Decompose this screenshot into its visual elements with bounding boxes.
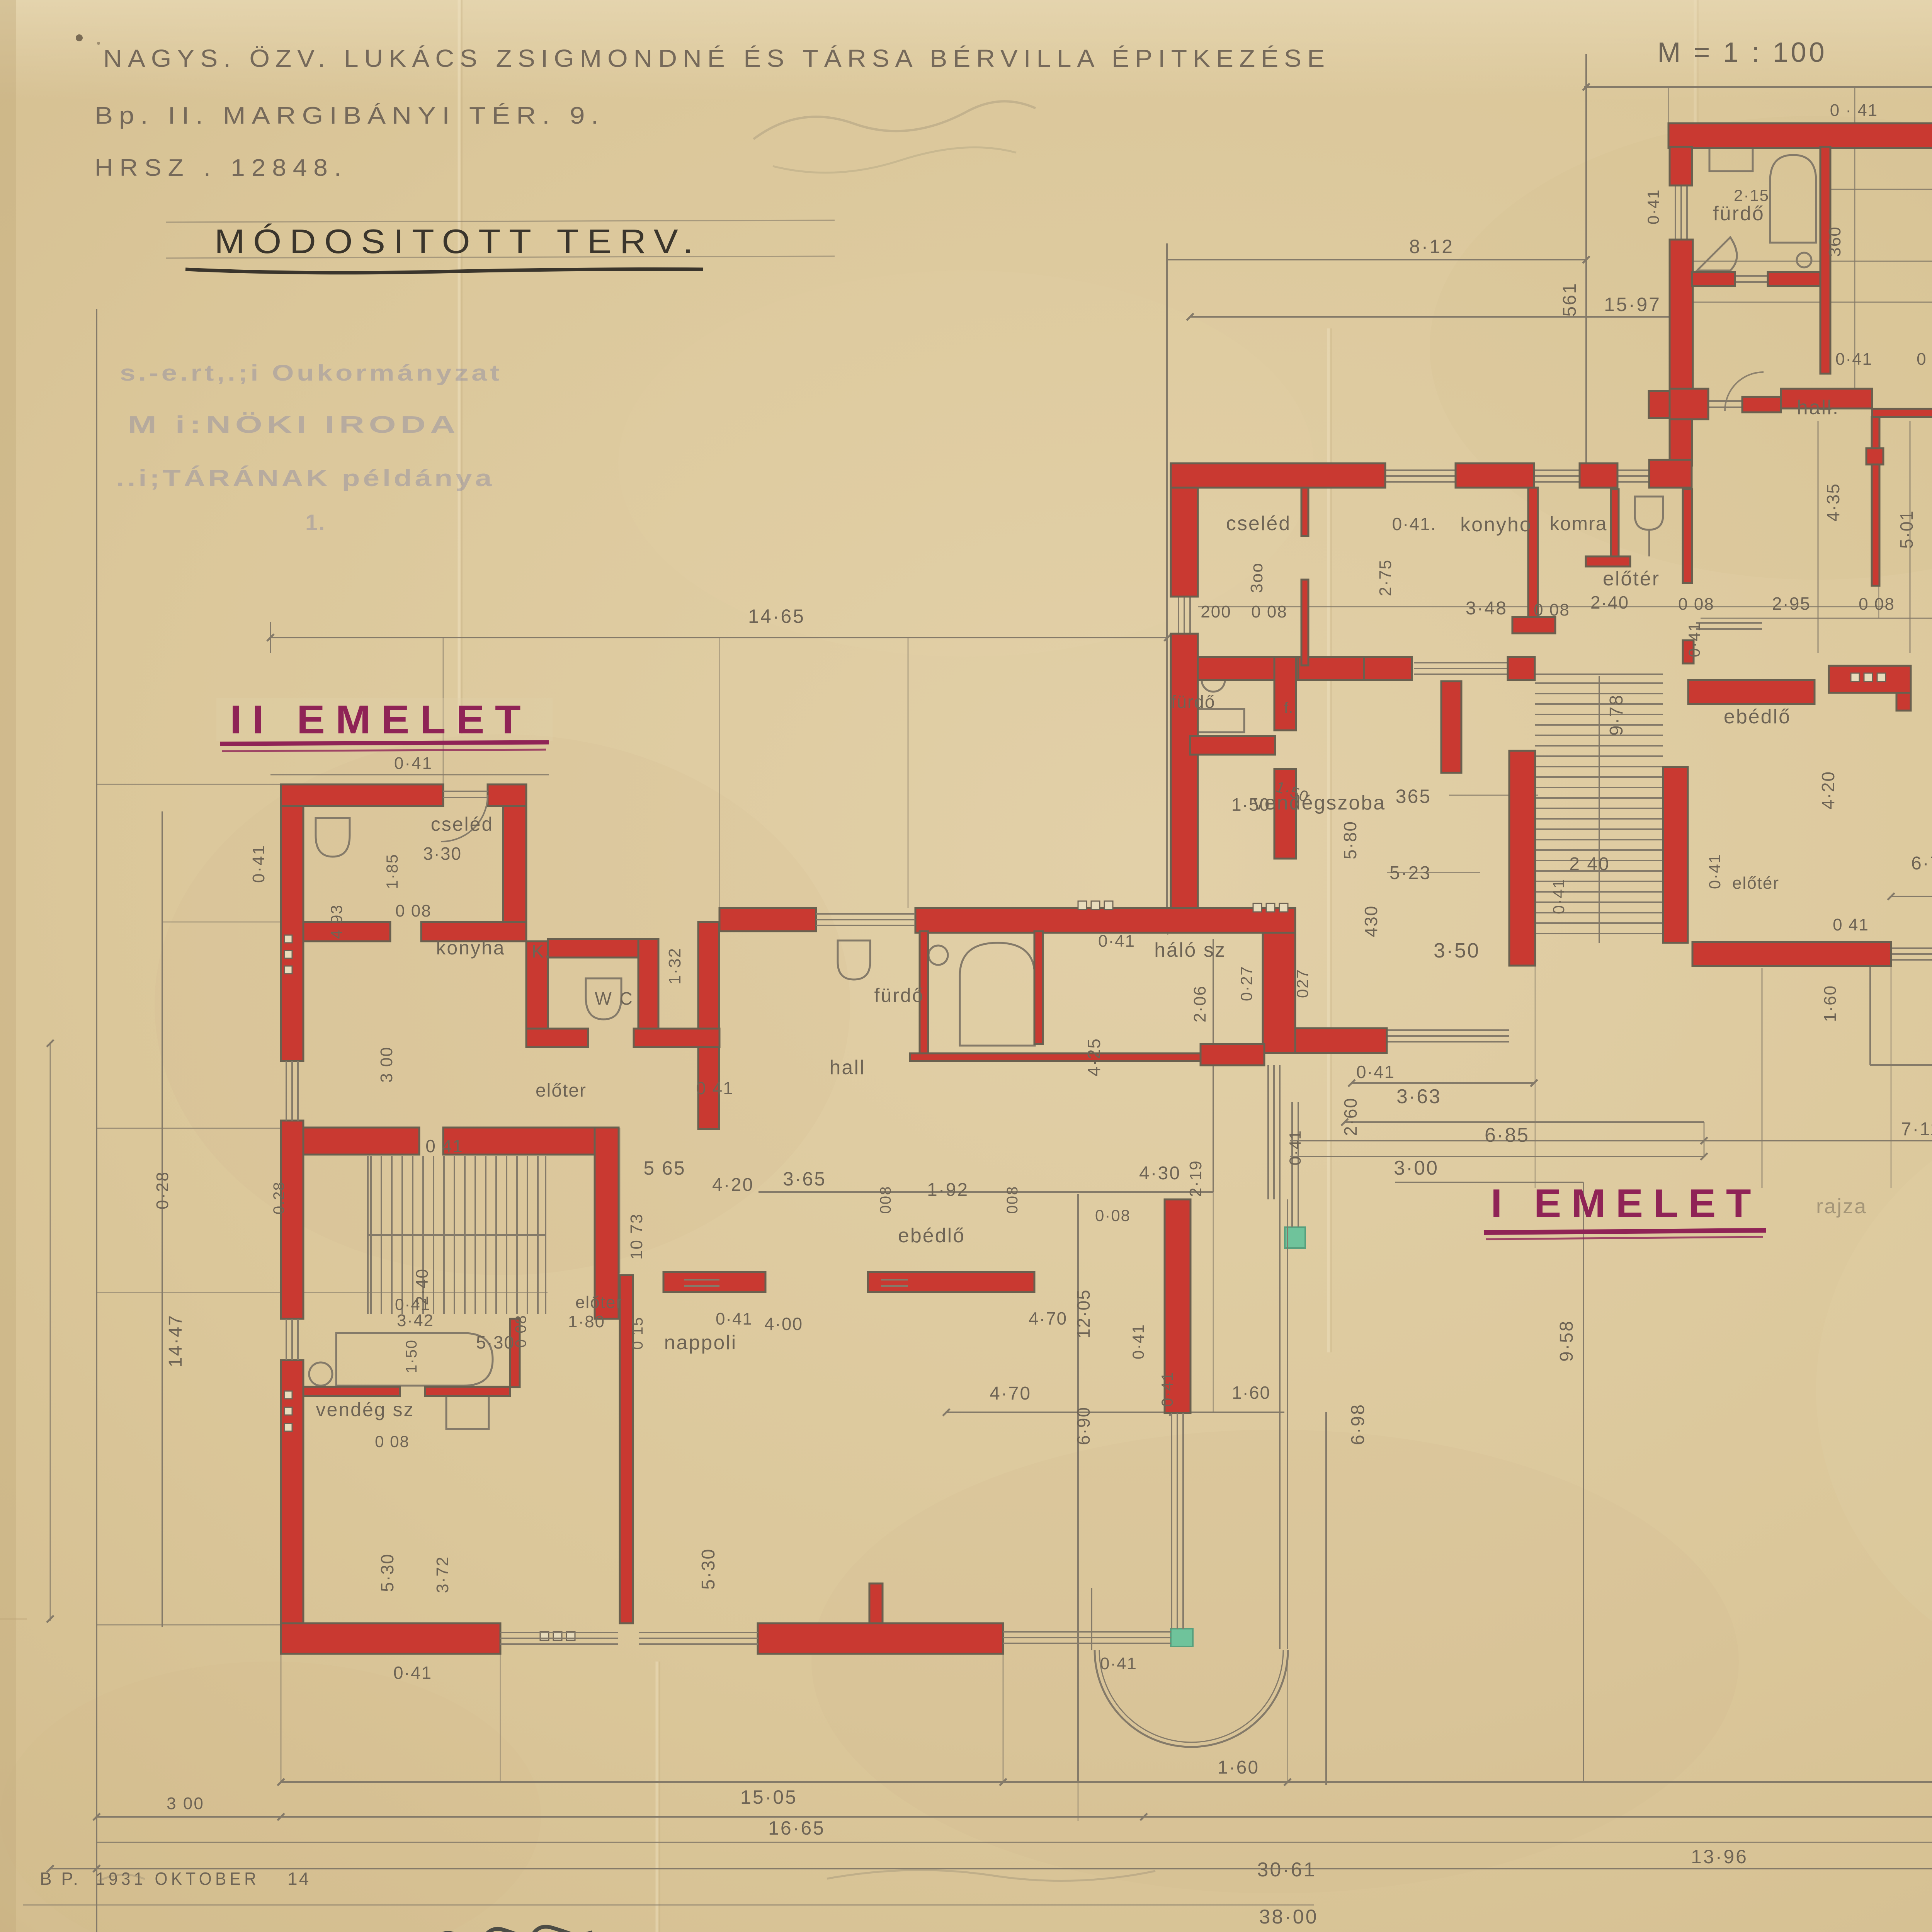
svg-text:7·11: 7·11 bbox=[1901, 1119, 1932, 1139]
svg-text:0·41: 0·41 bbox=[1549, 879, 1568, 914]
svg-text:Bp. II. MARGIBÁNYI TÉR.: Bp. II. MARGIBÁNYI TÉR. 9. bbox=[95, 102, 605, 129]
svg-text:2 40: 2 40 bbox=[1569, 854, 1610, 874]
svg-text:hall.: hall. bbox=[1797, 396, 1839, 419]
svg-text:0 · 41: 0 · 41 bbox=[1830, 101, 1878, 120]
svg-text:9·58: 9·58 bbox=[1556, 1320, 1577, 1362]
svg-text:B P.: B P. bbox=[40, 1869, 80, 1889]
svg-text:..i;TÁRÁNAK példánya: ..i;TÁRÁNAK példánya bbox=[116, 465, 495, 491]
svg-text:0·41: 0·41 bbox=[1100, 1654, 1137, 1673]
svg-text:MÓDOSITOTT TERV.: MÓDOSITOTT TERV. bbox=[214, 222, 701, 260]
svg-text:K.: K. bbox=[532, 941, 550, 961]
svg-text:M = 1 : 100: M = 1 : 100 bbox=[1657, 37, 1827, 68]
svg-text:3·48: 3·48 bbox=[1466, 598, 1507, 619]
svg-text:2·19: 2·19 bbox=[1186, 1160, 1205, 1197]
svg-text:561: 561 bbox=[1560, 282, 1580, 316]
svg-text:4·00: 4·00 bbox=[764, 1314, 803, 1334]
svg-text:1·32: 1·32 bbox=[665, 947, 684, 985]
svg-text:0·41: 0·41 bbox=[394, 754, 433, 773]
svg-text:16·65: 16·65 bbox=[768, 1817, 825, 1839]
svg-text:30·61: 30·61 bbox=[1257, 1859, 1316, 1881]
svg-text:13·96: 13·96 bbox=[1691, 1846, 1748, 1867]
svg-text:1931 OKTOBER: 1931 OKTOBER bbox=[96, 1869, 260, 1889]
svg-text:3 00: 3 00 bbox=[377, 1046, 396, 1083]
svg-text:1·92: 1·92 bbox=[927, 1180, 969, 1200]
svg-text:0 08: 0 08 bbox=[1534, 600, 1570, 619]
svg-text:3·42: 3·42 bbox=[397, 1311, 434, 1330]
svg-text:027: 027 bbox=[1293, 969, 1311, 998]
svg-text:1.: 1. bbox=[305, 510, 325, 535]
svg-text:5·30: 5·30 bbox=[476, 1332, 515, 1352]
svg-text:0·41: 0·41 bbox=[1098, 932, 1135, 951]
svg-text:fürdő: fürdő bbox=[874, 985, 924, 1006]
svg-text:14: 14 bbox=[287, 1869, 310, 1889]
svg-text:0 41: 0 41 bbox=[1833, 915, 1869, 934]
svg-text:38·00: 38·00 bbox=[1259, 1906, 1318, 1928]
svg-text:12·05: 12·05 bbox=[1073, 1289, 1094, 1338]
svg-text:2·06: 2·06 bbox=[1190, 985, 1209, 1022]
svg-text:4·70: 4·70 bbox=[990, 1383, 1031, 1404]
svg-text:előter: előter bbox=[575, 1293, 622, 1312]
svg-text:4·35: 4·35 bbox=[1823, 483, 1843, 522]
svg-text:0·41: 0·41 bbox=[1685, 622, 1703, 657]
svg-text:430: 430 bbox=[1361, 905, 1381, 937]
svg-text:0·41: 0·41 bbox=[716, 1310, 753, 1328]
svg-text:0.28: 0.28 bbox=[270, 1181, 287, 1214]
svg-text:s.-e.rt,.;i Oukormányzat: s.-e.rt,.;i Oukormányzat bbox=[120, 361, 502, 386]
svg-text:9·78: 9·78 bbox=[1606, 694, 1627, 736]
svg-text:4·20: 4·20 bbox=[1818, 771, 1838, 810]
svg-text:360: 360 bbox=[1825, 226, 1844, 257]
svg-text:cseléd: cseléd bbox=[431, 813, 494, 835]
svg-text:fürdő: fürdő bbox=[1171, 692, 1216, 712]
svg-text:0 15: 0 15 bbox=[629, 1316, 646, 1350]
svg-text:5·80: 5·80 bbox=[1340, 821, 1360, 859]
svg-text:4 93: 4 93 bbox=[327, 904, 345, 939]
svg-text:konyho: konyho bbox=[1460, 514, 1532, 536]
svg-text:5 65: 5 65 bbox=[643, 1157, 685, 1179]
svg-text:5·23: 5·23 bbox=[1389, 863, 1431, 883]
svg-text:5·01: 5·01 bbox=[1896, 510, 1917, 549]
svg-text:0 08: 0 08 bbox=[1917, 350, 1932, 369]
svg-text:ebédlő: ebédlő bbox=[898, 1225, 965, 1247]
svg-text:15·05: 15·05 bbox=[740, 1786, 798, 1808]
svg-text:0 41: 0 41 bbox=[696, 1078, 734, 1098]
svg-text:365: 365 bbox=[1396, 786, 1431, 807]
svg-text:200: 200 bbox=[1201, 602, 1231, 621]
svg-text:3·72: 3·72 bbox=[433, 1556, 452, 1593]
svg-text:f.: f. bbox=[1284, 699, 1293, 716]
svg-text:6·70: 6·70 bbox=[1911, 853, 1932, 874]
svg-text:14·65: 14·65 bbox=[748, 605, 805, 627]
svg-text:0·41: 0·41 bbox=[393, 1663, 432, 1683]
svg-text:1·80: 1·80 bbox=[568, 1312, 605, 1331]
svg-text:W C: W C bbox=[595, 988, 634, 1009]
svg-text:0·41: 0·41 bbox=[1129, 1324, 1147, 1359]
svg-text:NAGYS. ÖZV. LUKÁCS ZSIGMOND: NAGYS. ÖZV. LUKÁCS ZSIGMONDNÉ ÉS TÁRSA B… bbox=[103, 44, 1330, 72]
svg-text:3·63: 3·63 bbox=[1396, 1085, 1441, 1108]
svg-text:008: 008 bbox=[877, 1186, 894, 1214]
svg-text:előtér: előtér bbox=[1732, 874, 1779, 893]
svg-text:előtér: előtér bbox=[1603, 568, 1660, 590]
svg-text:fürdő: fürdő bbox=[1713, 202, 1765, 225]
svg-text:14·47: 14·47 bbox=[165, 1314, 186, 1367]
svg-text:6·85: 6·85 bbox=[1485, 1124, 1529, 1146]
svg-text:0 08: 0 08 bbox=[395, 901, 432, 920]
svg-text:0 08: 0 08 bbox=[1251, 602, 1287, 621]
svg-text:4·20: 4·20 bbox=[712, 1175, 754, 1195]
svg-text:0 08: 0 08 bbox=[375, 1432, 410, 1451]
svg-text:4·70: 4·70 bbox=[1029, 1308, 1067, 1328]
svg-text:6·98: 6·98 bbox=[1348, 1403, 1368, 1445]
svg-text:3·50: 3·50 bbox=[1434, 939, 1480, 962]
svg-text:15·97: 15·97 bbox=[1604, 294, 1661, 315]
svg-text:ebédlő: ebédlő bbox=[1724, 706, 1791, 728]
svg-text:3 00: 3 00 bbox=[167, 1794, 204, 1813]
svg-text:8·12: 8·12 bbox=[1409, 236, 1454, 257]
svg-text:0 41: 0 41 bbox=[425, 1136, 463, 1156]
svg-text:0·41: 0·41 bbox=[1158, 1371, 1176, 1407]
svg-text:0·41.: 0·41. bbox=[1392, 514, 1437, 534]
svg-text:komra: komra bbox=[1550, 513, 1607, 534]
svg-text:0·41: 0·41 bbox=[1706, 854, 1724, 889]
svg-text:HRSZ . 12848.: HRSZ . 12848. bbox=[95, 155, 348, 181]
svg-text:0·27: 0·27 bbox=[1237, 966, 1255, 1001]
svg-text:0·08: 0·08 bbox=[1095, 1206, 1131, 1225]
svg-text:0 08: 0 08 bbox=[1859, 595, 1895, 614]
svg-text:hall: hall bbox=[830, 1056, 866, 1079]
svg-text:0·41: 0·41 bbox=[1286, 1130, 1304, 1165]
svg-text:3·30: 3·30 bbox=[423, 844, 462, 864]
svg-text:1·50: 1·50 bbox=[1231, 794, 1270, 815]
svg-text:0·28: 0·28 bbox=[153, 1171, 172, 1209]
svg-text:háló sz: háló sz bbox=[1154, 939, 1226, 961]
svg-text:vendégszoba: vendégszoba bbox=[1253, 792, 1386, 814]
svg-text:1·60: 1·60 bbox=[1218, 1757, 1259, 1778]
svg-text:1·85: 1·85 bbox=[383, 854, 401, 889]
svg-text:2·15: 2·15 bbox=[1734, 186, 1769, 204]
svg-text:2·40: 2·40 bbox=[1590, 592, 1629, 612]
svg-text:5·30: 5·30 bbox=[698, 1548, 719, 1590]
svg-text:0·41: 0·41 bbox=[1644, 189, 1662, 224]
svg-text:3·65: 3·65 bbox=[783, 1168, 826, 1190]
svg-text:cseléd: cseléd bbox=[1226, 512, 1291, 535]
svg-text:2·75: 2·75 bbox=[1376, 559, 1395, 596]
svg-text:3oo: 3oo bbox=[1247, 562, 1266, 593]
svg-text:2·60: 2·60 bbox=[1340, 1097, 1361, 1136]
svg-text:nappoli: nappoli bbox=[664, 1332, 737, 1354]
svg-text:1·50: 1·50 bbox=[403, 1339, 420, 1373]
svg-text:1·60: 1·60 bbox=[1821, 985, 1840, 1022]
svg-text:rajza: rajza bbox=[1816, 1195, 1867, 1218]
svg-text:M i:NÖKI IRODA: M i:NÖKI IRODA bbox=[128, 412, 460, 438]
svg-text:0·41: 0·41 bbox=[1835, 350, 1872, 369]
svg-text:6·90: 6·90 bbox=[1073, 1406, 1094, 1445]
svg-text:10 73: 10 73 bbox=[627, 1213, 646, 1260]
svg-text:008: 008 bbox=[1004, 1186, 1021, 1214]
svg-text:2·95: 2·95 bbox=[1772, 594, 1811, 614]
svg-text:vendég sz: vendég sz bbox=[316, 1399, 415, 1420]
svg-text:II EMELET: II EMELET bbox=[230, 697, 531, 742]
svg-text:3·00: 3·00 bbox=[1394, 1157, 1439, 1179]
svg-text:0·41: 0·41 bbox=[249, 844, 268, 883]
svg-text:0·41: 0·41 bbox=[395, 1295, 430, 1313]
svg-text:5·30: 5·30 bbox=[377, 1553, 397, 1592]
svg-text:0 08: 0 08 bbox=[512, 1315, 529, 1348]
svg-text:előter: előter bbox=[536, 1080, 587, 1101]
svg-text:1·60: 1·60 bbox=[1232, 1383, 1270, 1403]
svg-text:0·41: 0·41 bbox=[1356, 1062, 1395, 1082]
svg-text:konyha: konyha bbox=[436, 937, 505, 959]
svg-text:4·25: 4·25 bbox=[1084, 1038, 1104, 1077]
svg-text:I EMELET: I EMELET bbox=[1491, 1181, 1761, 1226]
svg-text:0 08: 0 08 bbox=[1678, 595, 1714, 614]
svg-text:4·30: 4·30 bbox=[1139, 1163, 1181, 1184]
